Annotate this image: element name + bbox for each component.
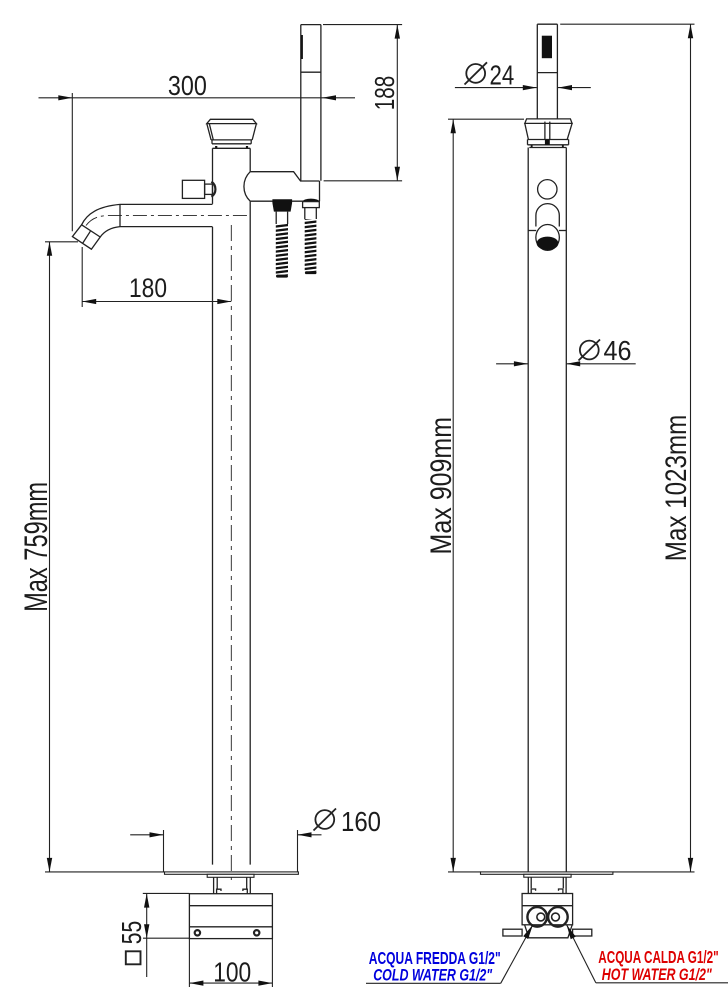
svg-text:300: 300: [168, 70, 207, 101]
svg-text:COLD WATER G1/2": COLD WATER G1/2": [373, 967, 492, 985]
svg-text:46: 46: [604, 335, 632, 366]
svg-text:188: 188: [369, 76, 400, 111]
svg-text:ACQUA CALDA G1/2": ACQUA CALDA G1/2": [598, 947, 718, 967]
svg-text:HOT WATER G1/2": HOT WATER G1/2": [602, 966, 712, 984]
svg-text:24: 24: [490, 60, 515, 91]
svg-text:180: 180: [129, 273, 167, 303]
svg-text:Max 759mm: Max 759mm: [18, 482, 54, 612]
svg-text:160: 160: [341, 806, 381, 837]
svg-text:Max 1023mm: Max 1023mm: [660, 415, 693, 562]
svg-text:55: 55: [116, 921, 147, 945]
svg-text:ACQUA FREDDA G1/2": ACQUA FREDDA G1/2": [369, 948, 501, 968]
svg-text:100: 100: [213, 956, 251, 987]
svg-text:Max 909mm: Max 909mm: [425, 417, 458, 555]
